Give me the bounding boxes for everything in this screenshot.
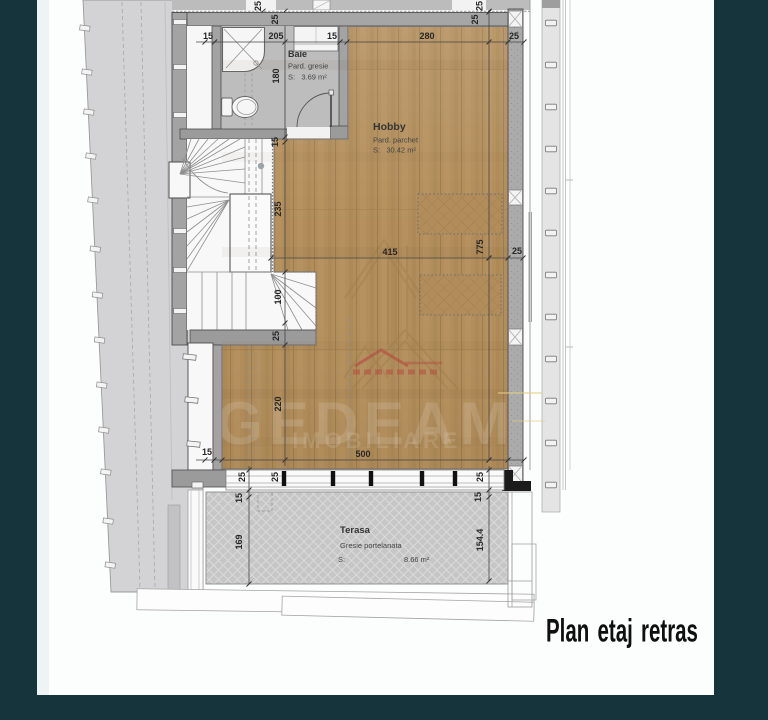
svg-text:25: 25: [253, 1, 263, 11]
svg-text:25: 25: [475, 472, 485, 482]
svg-text:25: 25: [270, 14, 280, 24]
svg-text:15: 15: [234, 493, 244, 503]
svg-text:IMOBILIARE: IMOBILIARE: [292, 428, 462, 453]
svg-text:25: 25: [271, 331, 281, 341]
svg-text:Terasa: Terasa: [340, 525, 371, 536]
svg-text:180: 180: [271, 68, 281, 83]
svg-text:8.66 m²: 8.66 m²: [404, 555, 430, 564]
svg-text:15: 15: [202, 447, 212, 457]
svg-text:25: 25: [509, 31, 519, 41]
svg-text:25: 25: [470, 14, 480, 24]
svg-text:S: 3.69 m²: S: 3.69 m²: [288, 73, 327, 82]
svg-text:15: 15: [473, 492, 483, 502]
svg-text:100: 100: [273, 289, 283, 304]
svg-text:25: 25: [512, 246, 522, 256]
svg-text:Pard. parchet: Pard. parchet: [373, 136, 419, 145]
svg-text:15: 15: [203, 31, 213, 41]
svg-text:235: 235: [273, 201, 283, 216]
svg-text:S:: S:: [338, 555, 345, 564]
svg-text:15: 15: [327, 31, 337, 41]
svg-text:169: 169: [234, 534, 244, 549]
svg-text:220: 220: [273, 396, 283, 411]
svg-text:415: 415: [382, 247, 397, 257]
svg-text:500: 500: [355, 449, 370, 459]
svg-text:Baie: Baie: [288, 49, 307, 59]
svg-text:25: 25: [270, 472, 280, 482]
svg-text:15: 15: [270, 137, 280, 147]
svg-text:Gresie portelanata: Gresie portelanata: [340, 541, 403, 550]
svg-text:Plan etaj retras: Plan etaj retras: [546, 613, 698, 649]
svg-text:154.4: 154.4: [475, 529, 485, 552]
svg-text:280: 280: [419, 31, 434, 41]
svg-text:25: 25: [475, 1, 485, 11]
svg-text:S: 30.42 m²: S: 30.42 m²: [373, 146, 416, 155]
svg-text:205: 205: [268, 31, 283, 41]
svg-text:Hobby: Hobby: [373, 121, 406, 133]
svg-text:25: 25: [237, 472, 247, 482]
svg-text:775: 775: [475, 239, 485, 254]
